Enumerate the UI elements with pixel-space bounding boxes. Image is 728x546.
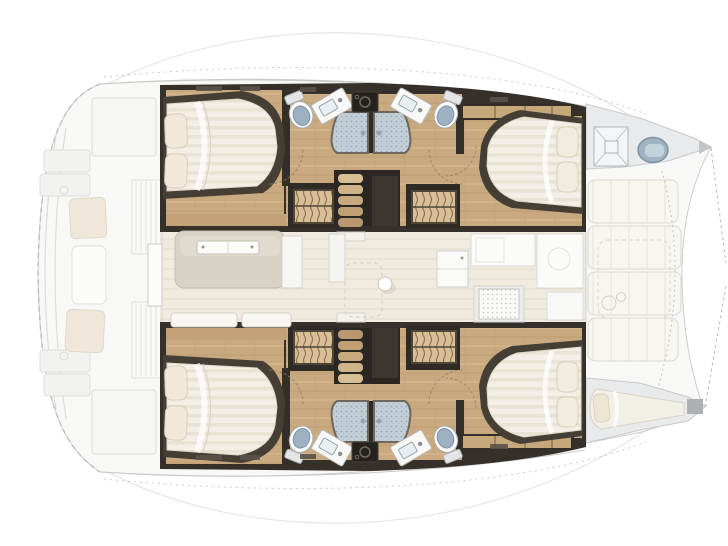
utility-unit — [352, 442, 378, 462]
louver-panel-top — [132, 180, 162, 254]
starboard-stair-landing — [337, 313, 365, 322]
shower-door-handle — [377, 131, 382, 136]
shower-door-handle — [361, 131, 366, 136]
shower-divider — [369, 112, 373, 153]
floor-plan-drawing — [0, 0, 728, 546]
starboard-fwd-berth — [479, 340, 583, 444]
transom-step — [44, 374, 90, 396]
pillow — [557, 162, 578, 192]
bowsprit-line-starboard — [705, 286, 726, 407]
port-hull — [160, 83, 586, 241]
pillow — [164, 406, 187, 441]
cockpit-locker-top — [92, 98, 156, 156]
shower-door-handle — [361, 419, 366, 424]
transom-step — [40, 174, 90, 196]
starboard-hull — [160, 313, 586, 471]
shower-door-handle — [377, 419, 382, 424]
forward-bench-cushion — [588, 226, 681, 269]
port-grating-locker-fwd — [406, 184, 460, 228]
saloon-table — [197, 241, 259, 254]
starboard-grating-locker-fwd — [406, 326, 460, 370]
forward-bench-cushion — [588, 180, 678, 223]
nav-cabinet — [282, 236, 302, 288]
floor-plan-canvas — [0, 0, 728, 546]
port-foot-locker — [166, 214, 286, 226]
starboard-grating-locker-aft — [288, 326, 338, 371]
port-grating-locker-aft — [288, 183, 338, 228]
shower-divider — [369, 401, 373, 442]
galley-stove — [474, 286, 524, 322]
forward-bench-cushion — [588, 318, 678, 361]
transom-step — [40, 350, 90, 372]
cockpit-seat-cushion — [69, 197, 107, 239]
pillow — [164, 114, 187, 149]
pillow — [557, 127, 578, 157]
side-cabinet — [329, 234, 345, 282]
port-fwd-berth — [479, 110, 583, 214]
utility-unit — [352, 92, 378, 112]
galley-sink-counter — [537, 234, 583, 288]
port-shower-stalls — [332, 112, 411, 153]
galley-counter — [471, 234, 535, 266]
galley-lower-counter — [547, 292, 583, 320]
pillow — [557, 397, 578, 427]
port-stair-partition — [372, 176, 398, 226]
round-deck-hatch — [638, 138, 668, 163]
u-settee — [175, 231, 285, 288]
bowsprit-line-port — [711, 148, 726, 263]
starboard-shower-stalls — [332, 401, 411, 442]
pillow — [164, 366, 187, 401]
pillow — [557, 362, 578, 392]
window-bench — [171, 313, 237, 327]
cockpit-table — [72, 246, 106, 304]
pillow — [164, 154, 187, 189]
skipper-berth-pillow — [593, 393, 610, 422]
anchor-locker-hatch — [594, 127, 628, 166]
starboard-aft-berth — [163, 355, 285, 463]
transom-step — [44, 150, 90, 172]
bow-tip-starboard — [687, 399, 703, 414]
window-bench — [242, 313, 291, 327]
aft-sliding-door — [148, 244, 162, 306]
starboard-stair-partition — [372, 328, 398, 378]
cockpit-locker-bottom — [92, 390, 156, 454]
louver-panel-bottom — [132, 302, 162, 378]
port-aft-berth — [163, 91, 285, 199]
forward-bench-cushion — [588, 272, 681, 315]
galley-refrigerator — [437, 251, 468, 287]
starboard-foot-locker — [166, 328, 286, 340]
cockpit-seat-cushion — [65, 309, 105, 353]
